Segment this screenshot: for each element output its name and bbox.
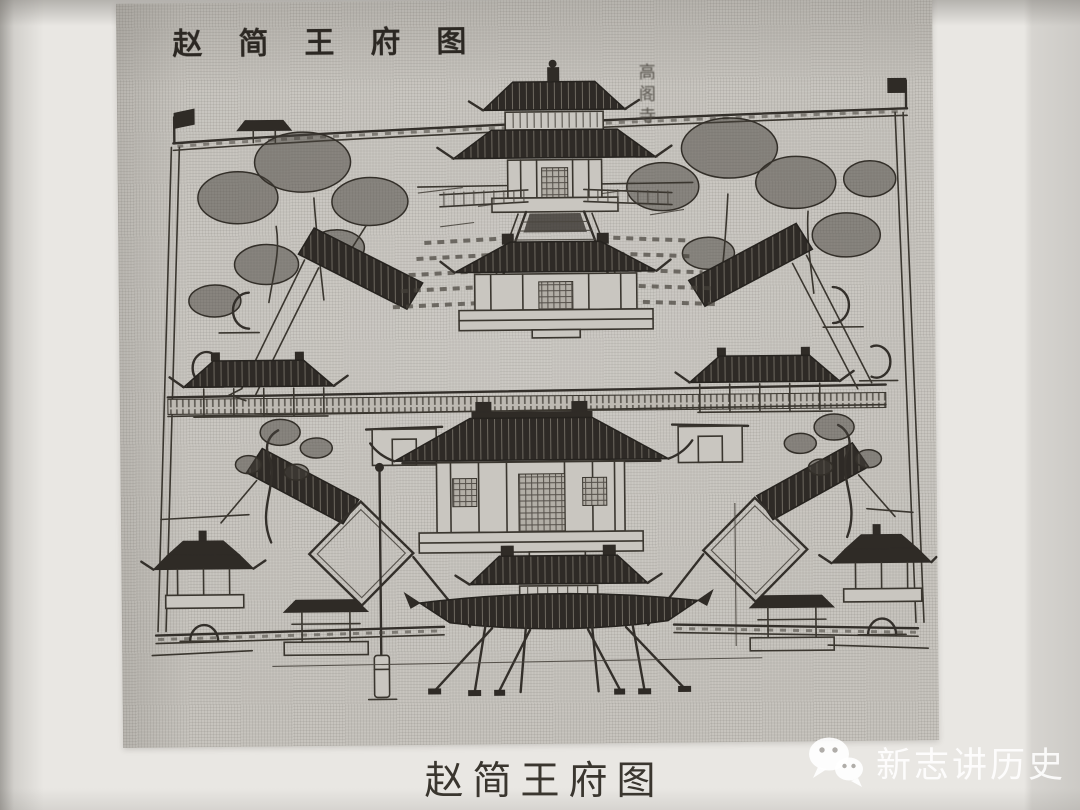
palace-drawing: [116, 0, 939, 748]
print-title: 赵简王府图: [172, 16, 502, 63]
front-gate: [404, 544, 713, 696]
altar-gate-right: [750, 595, 835, 651]
building-label: 高阁寺: [633, 63, 659, 129]
altar-gate-left: [284, 600, 369, 656]
diagonal-gallery-lower-right: [756, 442, 913, 519]
watermark-text: 新志讲历史: [876, 737, 1066, 788]
small-gate-right: [672, 424, 748, 463]
book-page-photo: 赵简王府图 高阁寺 赵简王府图 新志讲历史: [0, 0, 1080, 810]
wechat-icon: [808, 736, 866, 788]
side-arches-right: [823, 286, 898, 381]
watermark: 新志讲历史: [808, 736, 1066, 788]
woodcut-print: 赵简王府图 高阁寺: [116, 0, 939, 748]
upper-hall: [440, 233, 671, 339]
main-hall: [370, 400, 694, 562]
